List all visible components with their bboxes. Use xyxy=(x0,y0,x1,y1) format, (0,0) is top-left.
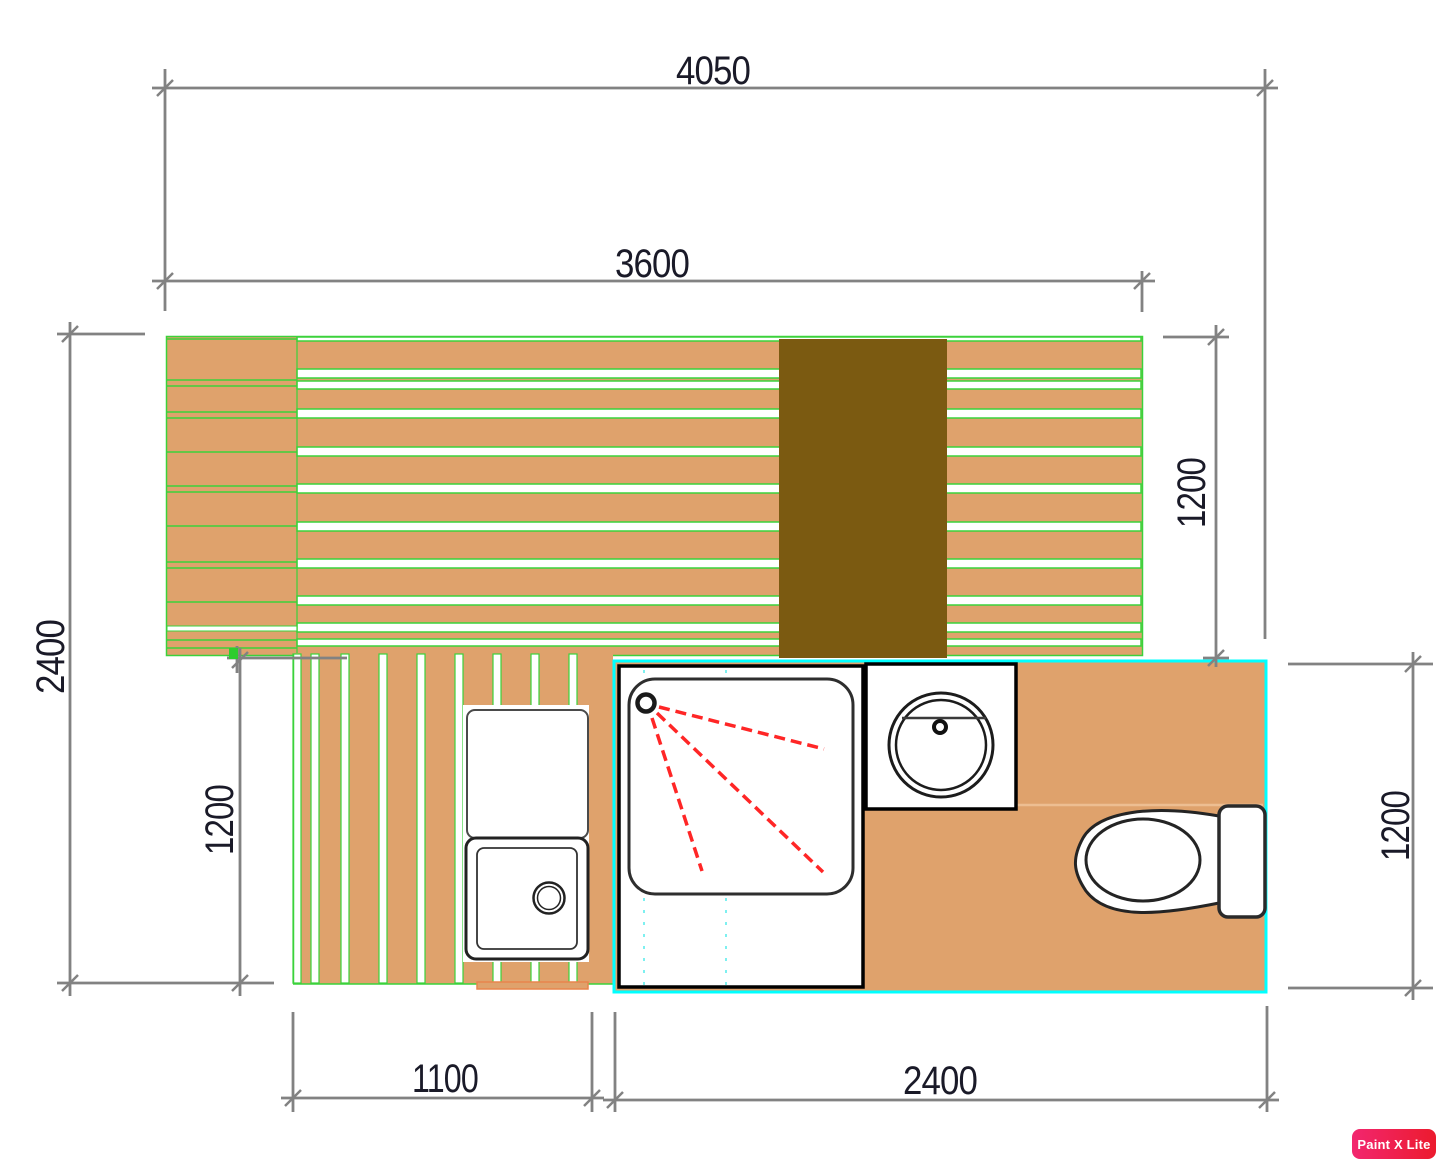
toilet-bowl xyxy=(1086,819,1200,901)
dim-label-lower-deck-width: 1100 xyxy=(412,1057,478,1101)
dim-label-lower-deck-depth: 1200 xyxy=(198,785,242,855)
toilet xyxy=(1075,806,1265,917)
sink-basin xyxy=(466,838,588,959)
shower xyxy=(619,666,863,987)
dim-label-upper-deck-depth: 1200 xyxy=(1170,458,1214,528)
dim-label-bathroom-width: 2400 xyxy=(903,1059,977,1103)
floor-plan-canvas: 4050 3600 2400 1200 1200 1200 1100 2400 … xyxy=(0,0,1438,1164)
tap-icon xyxy=(934,721,946,733)
walkway xyxy=(779,339,947,658)
dim-label-overall-depth: 2400 xyxy=(29,620,73,694)
dim-label-deck-width: 3600 xyxy=(615,242,689,286)
upper-deck-plank-gaps xyxy=(297,337,1141,646)
dim-label-bathroom-depth: 1200 xyxy=(1374,791,1418,861)
counter-top xyxy=(467,710,588,838)
bathroom xyxy=(614,661,1266,992)
upper-deck xyxy=(166,336,1143,658)
watermark-label: Paint X Lite xyxy=(1357,1137,1430,1152)
floor-plan-svg: 4050 3600 2400 1200 1200 1200 1100 2400 xyxy=(0,0,1438,1164)
shower-tray xyxy=(629,679,853,894)
washbasin-rim xyxy=(889,693,993,797)
toilet-tank xyxy=(1219,806,1265,917)
counter-base-strip xyxy=(477,982,588,989)
dim-label-overall-width: 4050 xyxy=(676,49,750,93)
shower-head-icon xyxy=(638,695,655,712)
sink-counter xyxy=(463,705,589,989)
watermark-badge: Paint X Lite xyxy=(1352,1129,1436,1159)
corner-marker xyxy=(229,648,238,659)
washbasin xyxy=(866,664,1016,809)
